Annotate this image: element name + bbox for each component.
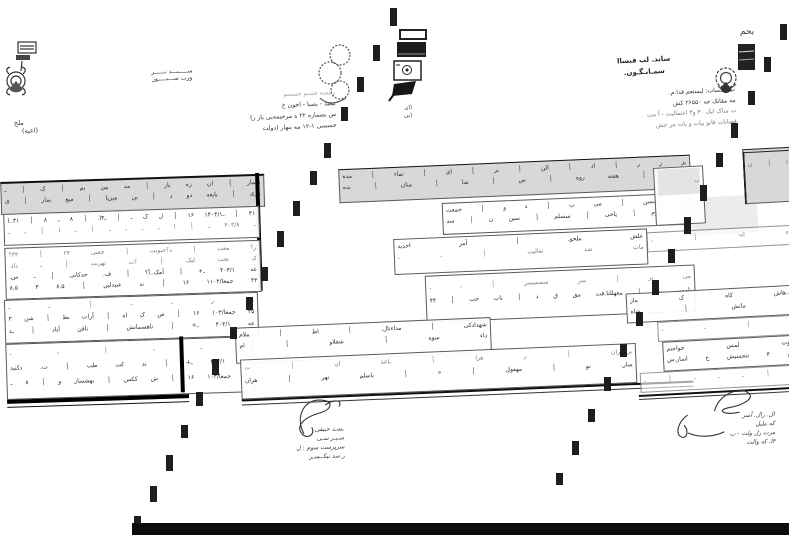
scanner-mark xyxy=(780,24,787,40)
scanner-mark xyxy=(324,143,331,158)
scanner-mark xyxy=(150,486,157,502)
scan-edge-bar xyxy=(132,523,789,535)
scanner-mark xyxy=(572,441,579,455)
left-table-row-1: ۴۱ │ ـ۱۴۰۳/۱ ۱۶ │ ل ک ـ │ ـ۳ا. │ ۸ ـ ۸ │… xyxy=(3,206,260,246)
right-title-block: ساند. لب فبساا سمـاٮـگـون. xyxy=(593,51,694,80)
right-table: ا │ ن ٮ ء اه- │ ـ د.هاش کاه ک ماز ـ مانش… xyxy=(614,141,789,415)
scanner-mark xyxy=(373,45,380,61)
middle-stamp-note: (ان (نی xyxy=(404,104,413,120)
scanner-mark xyxy=(341,107,348,121)
row-text: ء اه- │ ـ xyxy=(650,227,788,245)
box-cell: ٮ xyxy=(657,168,700,196)
middle-stamp-icon xyxy=(392,28,434,104)
right-signature-block: ال. رال. آسر که ملبل مرت رل ولت - ب ۳ا، … xyxy=(649,384,787,469)
left-side-note: ملح (اعیه) xyxy=(0,118,38,135)
left-emblem-icon xyxy=(6,38,42,108)
scanner-mark xyxy=(181,425,188,438)
right-table-box: ٮ xyxy=(653,165,706,226)
scanner-mark xyxy=(556,473,563,485)
right-logo-script: بحم xyxy=(740,27,754,37)
left-table-row-4: ـ ـ ـ │ ـ ـ عه ۴۰۳/۱ ـ+ │ ند کت طب │ ت. … xyxy=(5,336,255,400)
signature-line: ۳ا، که والت xyxy=(680,437,775,449)
right-table-row-1: ء اه- │ ـ xyxy=(646,225,789,253)
left-title-block: ســـــٮـــد ٮــــــر ورٮ ســـٮـــــور xyxy=(126,66,218,83)
scanner-mark xyxy=(588,409,595,422)
right-table-corner: ا │ ن xyxy=(742,147,789,204)
scanner-mark xyxy=(166,455,173,471)
scanner-mark xyxy=(390,8,397,26)
scanned-documents-canvas: ســـــٮـــد ٮــــــر ورٮ ســـٮـــــور مل… xyxy=(0,0,789,535)
middle-stamp-note-line-2: (نی xyxy=(404,112,413,120)
left-side-note-line-2: (اعیه) xyxy=(0,126,38,135)
right-emblem-icon: بحم xyxy=(714,20,770,104)
corner-cells: ا │ ن xyxy=(747,152,788,176)
left-table-row-3: ـ ر ـ ـ │ ـ ـ ۴۵ جمعا/۱۰۳ ۱۶ │ ض ک اه │ … xyxy=(4,292,259,344)
middle-emblem-icon xyxy=(316,42,360,108)
left-signature-lines: ـسـد حبیقی سـبـر سـی سرپرست سوم : ل ر سد… xyxy=(244,424,345,463)
right-signature-lines: ال. رال. آسر که ملبل مرت رل ولت - ب ۳ا، … xyxy=(680,410,776,449)
left-table-row-2: ر؟ معت │ د؟حبوبت │ جعنی ٢٣ │ ٣٣؟ ک تحت ل… xyxy=(4,240,262,300)
